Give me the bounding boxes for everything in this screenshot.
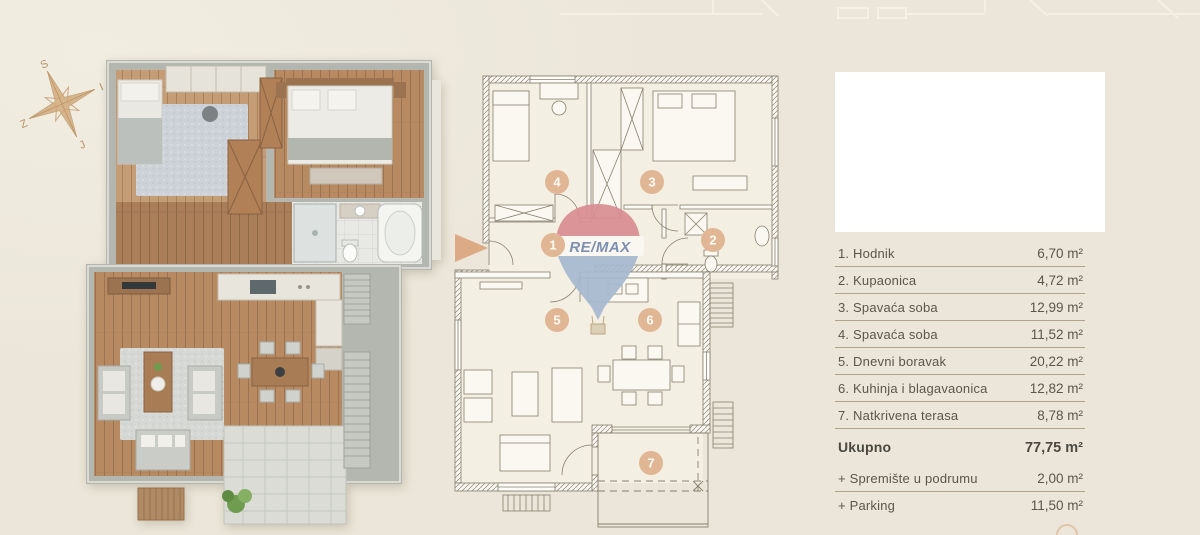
room-area: 8,78 m² [1037, 408, 1083, 423]
room-badge-3: 3 [640, 170, 664, 194]
loveseat [98, 366, 130, 420]
balloon-basket [591, 324, 605, 334]
total-label: Ukupno [838, 439, 891, 455]
room-label: 1. Hodnik [838, 246, 895, 261]
balloon-wordmark: RE/MAX [569, 239, 631, 256]
room-label: 5. Dnevni boravak [838, 354, 946, 369]
legend-row-parking: + Parking 11,50 m² [835, 492, 1085, 518]
room-badge-2: 2 [701, 228, 725, 252]
room-label: 4. Spavaća soba [838, 327, 938, 342]
room-badge-6: 6 [638, 308, 662, 332]
legend-row-terasa: 7. Natkrivena terasa 8,78 m² [835, 402, 1085, 429]
background-sketch [0, 0, 1200, 42]
compass-west-label: Z [18, 117, 29, 131]
decorative-circle-fragment [1056, 524, 1078, 535]
tv-console [108, 278, 170, 294]
room-badge-5: 5 [545, 308, 569, 332]
sofa [188, 366, 222, 420]
room-badge-1: 1 [541, 233, 565, 257]
compass-north-label: S [39, 58, 51, 72]
bed-single [118, 80, 162, 164]
wall-cabinet [166, 66, 266, 92]
coffee-table [144, 352, 172, 412]
extra-label: + Spremište u podrumu [838, 471, 978, 486]
extra-label: + Parking [838, 498, 895, 513]
svg-text:2: 2 [709, 233, 716, 248]
legend-row-kuhinja: 6. Kuhinja i blagavaonica 12,82 m² [835, 375, 1085, 402]
legend-total-row: Ukupno 77,75 m² [835, 429, 1085, 465]
legend-row-spavaca-2: 4. Spavaća soba 11,52 m² [835, 321, 1085, 348]
room-area: 12,99 m² [1030, 300, 1083, 315]
legend-row-dnevni: 5. Dnevni boravak 20,22 m² [835, 348, 1085, 375]
room-area: 6,70 m² [1037, 246, 1083, 261]
legend-row-kupaonica: 2. Kupaonica 4,72 m² [835, 267, 1085, 294]
legend-row-spavaca-1: 3. Spavaća soba 12,99 m² [835, 294, 1085, 321]
room-area: 20,22 m² [1030, 354, 1083, 369]
room-label: 3. Spavaća soba [838, 300, 938, 315]
legend-row-spremiste: + Spremište u podrumu 2,00 m² [835, 465, 1085, 492]
room-legend: 1. Hodnik 6,70 m² 2. Kupaonica 4,72 m² 3… [835, 240, 1085, 518]
desk-chair [202, 106, 218, 122]
schematic-2d-floor-plan: RE/MAX 1 2 3 4 5 [440, 58, 800, 535]
svg-text:4: 4 [553, 175, 561, 190]
svg-text:7: 7 [647, 456, 654, 471]
room-area: 12,82 m² [1030, 381, 1083, 396]
svg-text:5: 5 [553, 313, 560, 328]
room-badge-7: 7 [639, 451, 663, 475]
legend-row-hodnik: 1. Hodnik 6,70 m² [835, 240, 1085, 267]
hall-floor [116, 202, 306, 270]
room-label: 2. Kupaonica [838, 273, 916, 288]
svg-text:3: 3 [648, 175, 655, 190]
svg-text:6: 6 [646, 313, 653, 328]
room-area: 11,52 m² [1031, 327, 1083, 342]
room-area: 4,72 m² [1037, 273, 1083, 288]
room-badge-4: 4 [545, 170, 569, 194]
bedroom-bench [310, 168, 382, 184]
render-lower-unit [86, 264, 402, 524]
exterior-stairs [344, 274, 370, 468]
extra-area: 2,00 m² [1037, 471, 1083, 486]
floorplan-page: S I J Z [0, 0, 1200, 535]
room-label: 7. Natkrivena terasa [838, 408, 958, 423]
wood-deck [138, 488, 184, 520]
sofa-bottom [136, 430, 190, 470]
logo-placeholder-box [835, 72, 1105, 232]
render-upper-unit [106, 60, 441, 270]
extra-area: 11,50 m² [1031, 498, 1083, 513]
render-3d-floor-plan [78, 52, 443, 535]
total-area: 77,75 m² [1025, 440, 1083, 456]
terrace-pavers [222, 426, 346, 524]
room-label: 6. Kuhinja i blagavaonica [838, 381, 988, 396]
svg-text:1: 1 [549, 238, 556, 253]
bed-double [276, 78, 406, 164]
